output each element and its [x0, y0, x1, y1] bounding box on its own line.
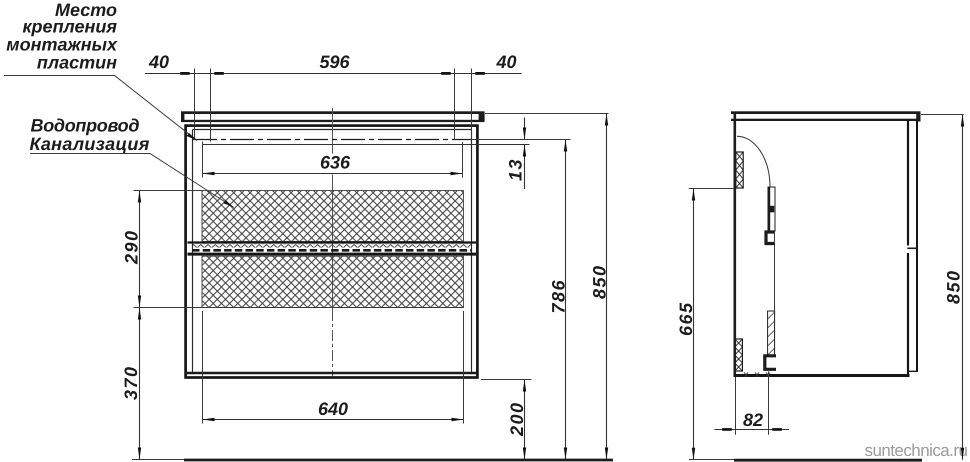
svg-text:636: 636 [320, 153, 351, 173]
svg-text:200: 200 [507, 401, 527, 437]
svg-text:850: 850 [590, 264, 610, 299]
svg-text:крепления: крепления [22, 16, 117, 36]
svg-text:786: 786 [549, 279, 569, 314]
svg-text:13: 13 [506, 158, 526, 181]
svg-text:Канализация: Канализация [30, 134, 150, 154]
svg-text:640: 640 [318, 399, 348, 419]
svg-text:пластин: пластин [37, 52, 117, 72]
svg-text:850: 850 [944, 269, 964, 304]
svg-text:370: 370 [121, 365, 141, 400]
svg-text:40: 40 [496, 52, 517, 72]
svg-text:290: 290 [122, 229, 142, 265]
svg-text:Водопровод: Водопровод [31, 116, 140, 136]
svg-text:596: 596 [320, 52, 351, 72]
svg-text:665: 665 [676, 301, 696, 336]
svg-text:82: 82 [743, 410, 763, 430]
svg-text:40: 40 [148, 52, 169, 72]
svg-text:suntechnica.ru: suntechnica.ru [865, 441, 968, 460]
